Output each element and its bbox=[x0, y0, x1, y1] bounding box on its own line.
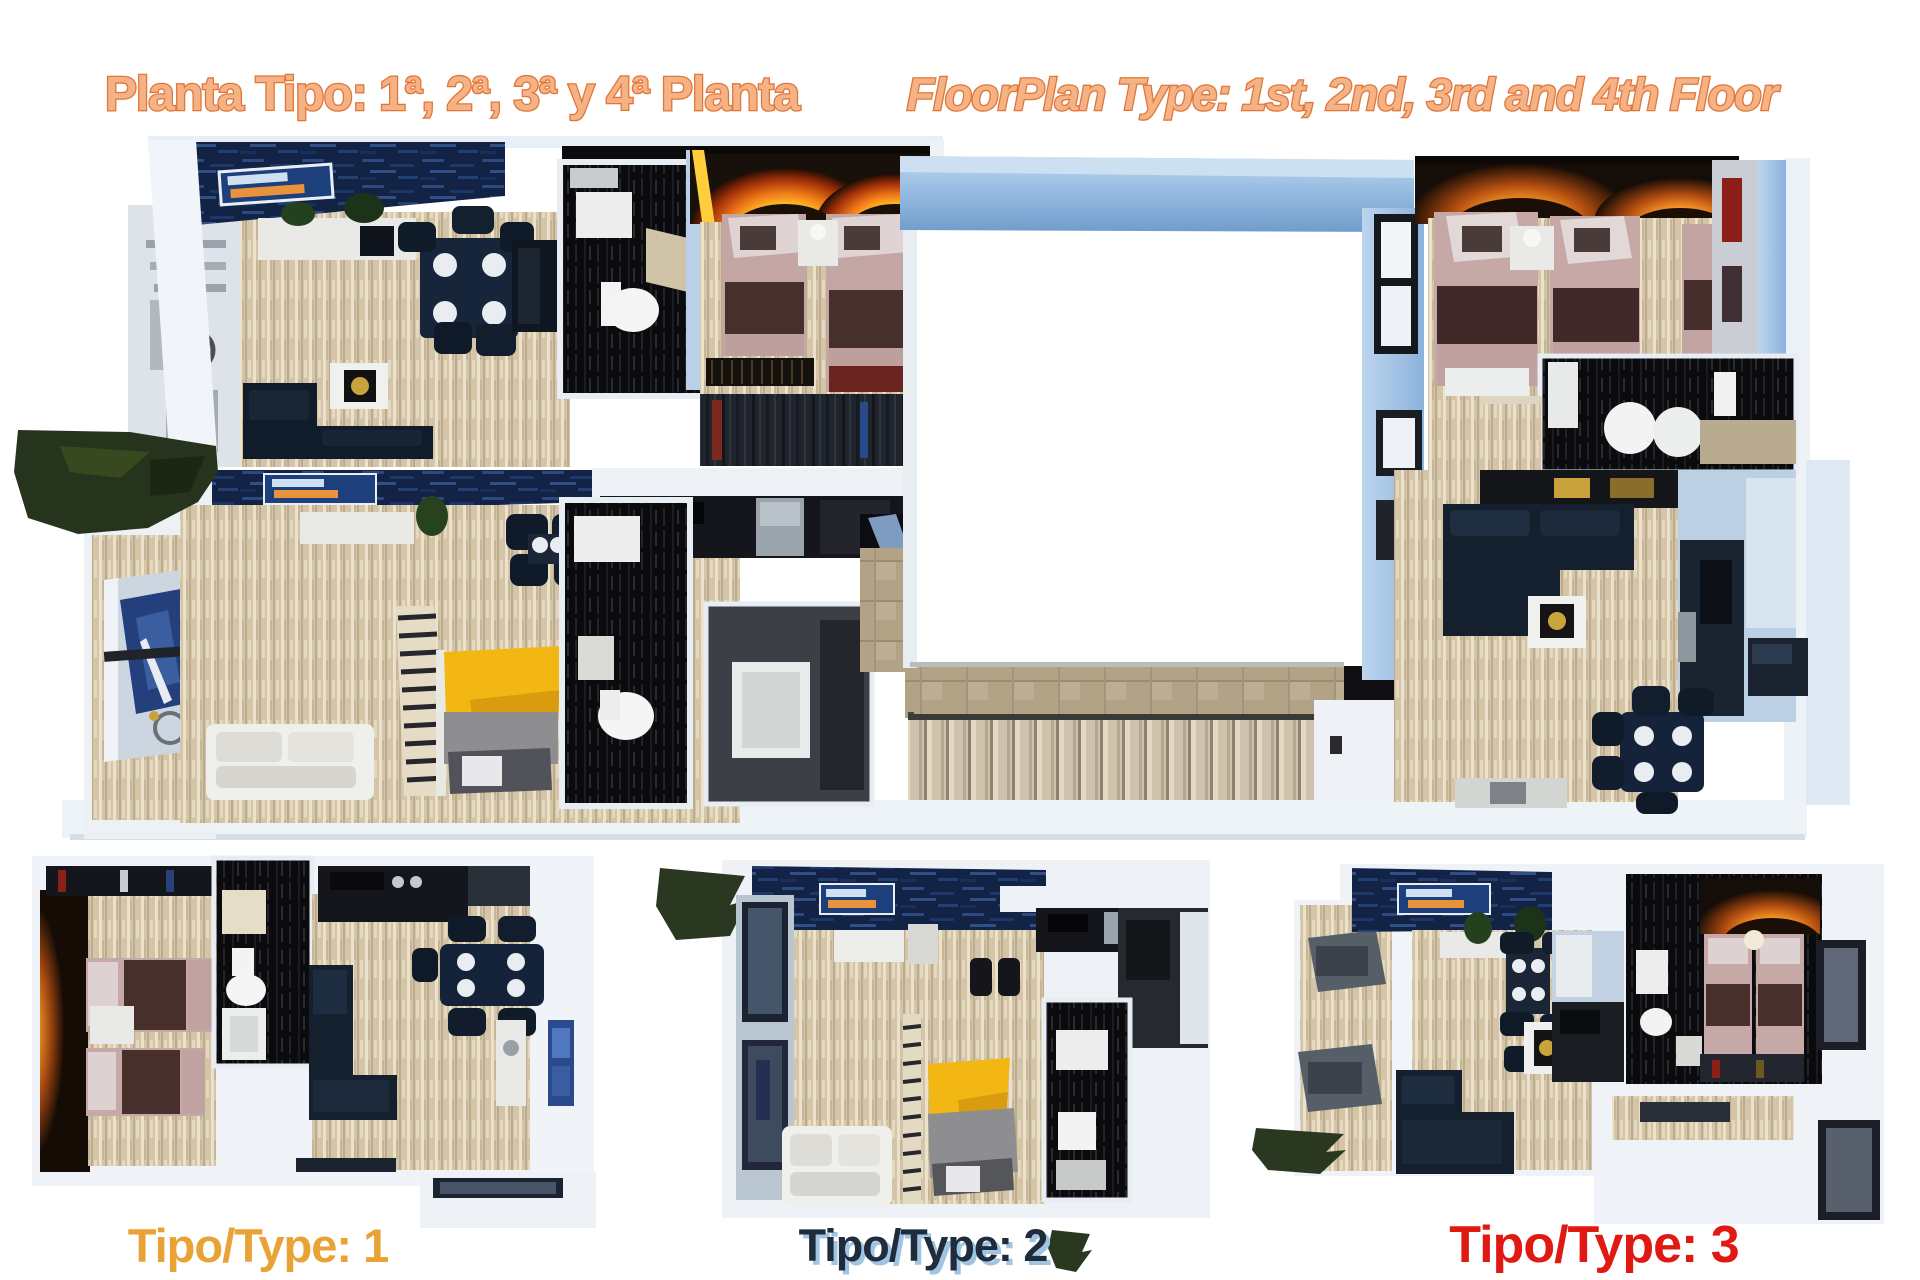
svg-text:FloorPlan Type: 1st, 2nd, 3rd: FloorPlan Type: 1st, 2nd, 3rd and 4th Fl… bbox=[907, 69, 1781, 120]
svg-text:Tipo/Type: 1: Tipo/Type: 1 bbox=[128, 1219, 388, 1272]
svg-text:Tipo/Type: 3: Tipo/Type: 3 bbox=[1449, 1216, 1739, 1274]
svg-text:Planta Tipo: 1ª, 2ª, 3ª y 4ª P: Planta Tipo: 1ª, 2ª, 3ª y 4ª Planta bbox=[105, 68, 800, 121]
svg-text:Tipo/Type: 2: Tipo/Type: 2 bbox=[799, 1220, 1048, 1271]
